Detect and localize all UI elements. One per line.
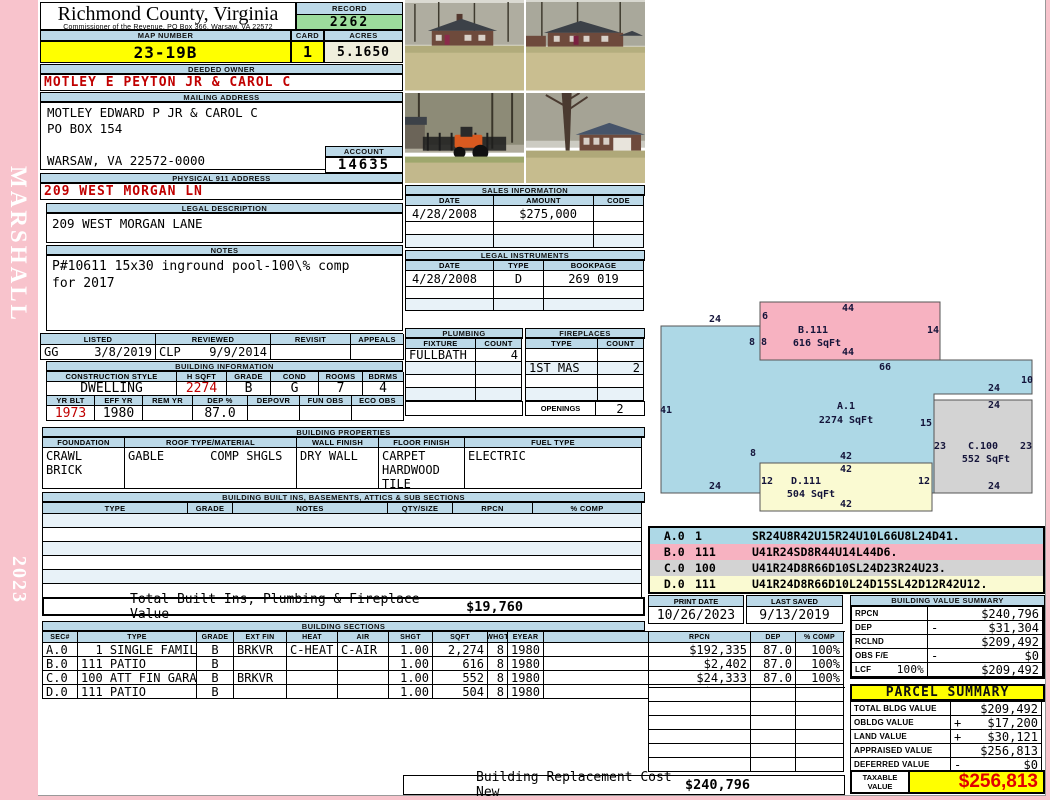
instrument-date: [406, 299, 494, 311]
building-info-header: H SQFT: [177, 372, 227, 382]
value-summary-amount: $240,796: [928, 607, 1043, 621]
building-info-header: ECO OBS: [352, 396, 404, 406]
instrument-date: [406, 287, 494, 299]
sale-amount: $275,000: [494, 206, 594, 222]
sketch-codes-table: A.01SR24U8R42U15R24U10L66U8L24D41. B.011…: [648, 526, 1045, 594]
sections-col-header: HEAT: [287, 632, 338, 643]
sketch-dimension-label: 23: [934, 441, 946, 452]
review-col-header: LISTED: [41, 334, 156, 345]
building-value-summary-table: RPCN$240,796DEP-$31,304RCLND$209,492OBS …: [850, 606, 1045, 679]
sections-empty-cell: [796, 716, 844, 730]
section-sqft: 2,274: [433, 643, 488, 657]
sale-code: [594, 235, 644, 248]
section-sec: C.0: [43, 671, 78, 685]
fireplace-type: [526, 375, 598, 388]
sketch-dimension-label: 10: [1021, 375, 1033, 386]
sale-code: [594, 222, 644, 235]
sketch-dimension-label: C.100: [968, 441, 998, 452]
sketch-dimension-label: 42: [840, 451, 852, 462]
sales-col-header: DATE: [406, 196, 494, 206]
economic-obsolescence: [352, 406, 404, 421]
account-label: ACCOUNT: [325, 146, 403, 157]
parcel-amount: $256,813: [951, 744, 1042, 758]
sections-empty-cell: [649, 744, 751, 758]
photo-side-illustration: [526, 0, 645, 91]
sections-empty-cell: [796, 688, 844, 702]
section-ext-fin: [234, 685, 287, 699]
replacement-cost-label: Building Replacement Cost New: [476, 770, 685, 800]
sketch-code-code: 1: [695, 529, 752, 543]
built-ins-header: GRADE: [188, 503, 233, 514]
section-shgt: 1.00: [389, 685, 433, 699]
sketch-code-row: B.0111U41R24SD8R44U14L44D6.: [650, 544, 1043, 560]
notes-text: P#10611 15x30 inground pool-100\% comp f…: [46, 255, 403, 331]
depreciation-pct: 87.0: [193, 406, 248, 421]
sections-empty-cell: [751, 702, 796, 716]
plumbing-count: [476, 375, 522, 388]
section-heat: C-HEAT: [287, 643, 338, 657]
built-ins-header: % COMP: [533, 503, 642, 514]
sections-col-header: SQFT: [433, 632, 488, 643]
value-summary-label: OBS F/E: [852, 649, 928, 663]
last-saved-label: LAST SAVED: [746, 595, 843, 607]
sale-date: 4/28/2008: [406, 206, 494, 222]
sketch-dimension-label: 24: [988, 400, 1000, 411]
value-summary-amount: $209,492: [928, 635, 1043, 649]
sale-code: [594, 206, 644, 222]
instrument-bookpage: 269 019: [544, 271, 644, 287]
replacement-cost-row: Building Replacement Cost New $240,796: [403, 775, 845, 795]
sketch-dimension-label: B.111: [798, 325, 828, 336]
map-number-label: MAP NUMBER: [40, 30, 291, 41]
section-whgt: 8: [488, 671, 508, 685]
section-tail: [544, 657, 649, 671]
section-dep: 87.0: [751, 643, 796, 657]
foundation: CRAWL BRICK: [43, 448, 125, 489]
building-info-header: ROOMS: [319, 372, 363, 382]
sketch-dimension-label: 24: [709, 481, 721, 492]
section-air: [338, 657, 389, 671]
section-shgt: 1.00: [389, 671, 433, 685]
heated-sqft: 2274: [177, 382, 227, 396]
parcel-amount: +$17,200: [951, 716, 1042, 730]
plumbing-fixture: [406, 375, 476, 388]
sections-empty-cell: [649, 730, 751, 744]
property-photo-tractor: [405, 93, 524, 184]
instrument-col-header: BOOKPAGE: [544, 261, 644, 271]
section-rpcn: $2,402: [649, 657, 751, 671]
sketch-code-sec: C.0: [650, 561, 695, 575]
building-info-header: YR BLT: [47, 396, 95, 406]
plumbing-label: PLUMBING: [405, 328, 523, 338]
property-header: FLOOR FINISH: [379, 438, 465, 448]
sale-amount: [494, 222, 594, 235]
built-ins-empty-row: [43, 570, 642, 584]
value-summary-label: LCF100%: [852, 663, 928, 677]
instrument-date: 4/28/2008: [406, 271, 494, 287]
notes-label: NOTES: [46, 245, 403, 255]
card-number: 1: [291, 41, 324, 63]
sketch-code-code: 100: [695, 561, 752, 575]
sale-date: [406, 235, 494, 248]
listed-value: GG3/8/2019: [41, 345, 156, 360]
section-type: 100 ATT FIN GARAGE: [78, 671, 197, 685]
photo-front-illustration: [405, 0, 524, 91]
sketch-code-vector: U41R24D8R66D10L24D15SL42D12R42U12.: [752, 577, 1045, 591]
building-sketch: 24412466102415428A.12274 SqFt44688B.1116…: [650, 290, 1045, 522]
fireplace-type: 1ST MAS: [526, 362, 598, 375]
section-comp: 100%: [796, 643, 844, 657]
parcel-label: APPRAISED VALUE: [851, 744, 951, 758]
plumbing-empty-cell: [405, 401, 523, 416]
built-ins-header: RPCN: [453, 503, 533, 514]
sales-table: DATEAMOUNTCODE4/28/2008$275,000: [405, 195, 645, 248]
sketch-dimension-label: 552 SqFt: [962, 454, 1010, 465]
section-air: [338, 671, 389, 685]
sections-empty-cell: [796, 744, 844, 758]
sketch-dimension-label: 15: [920, 418, 932, 429]
taxable-value-label: TAXABLE VALUE: [852, 772, 910, 792]
built-ins-header: TYPE: [43, 503, 188, 514]
building-info-header: DEP %: [193, 396, 248, 406]
section-eyear: 1980: [508, 685, 544, 699]
fireplace-count: [598, 349, 644, 362]
openings-label: OPENINGS: [525, 401, 596, 416]
plumbing-fixture: FULLBATH: [406, 349, 476, 362]
instrument-col-header: DATE: [406, 261, 494, 271]
instrument-col-header: TYPE: [494, 261, 544, 271]
plumbing-fixture: [406, 388, 476, 401]
building-info-header: EFF YR: [95, 396, 143, 406]
physical-address: 209 WEST MORGAN LN: [40, 183, 403, 200]
building-info-header: COND: [271, 372, 319, 382]
instrument-bookpage: [544, 299, 644, 311]
parcel-label: TOTAL BLDG VALUE: [851, 702, 951, 716]
sketch-code-row: A.01SR24U8R42U15R24U10L66U8L24D41.: [650, 528, 1043, 544]
building-info-header: FUN OBS: [300, 396, 352, 406]
section-comp: 100%: [796, 671, 844, 685]
fuel-type: ELECTRIC: [465, 448, 642, 489]
plumbing-col-header: COUNT: [476, 339, 522, 349]
sketch-code-row: D.0111U41R24D8R66D10L24D15SL42D12R42U12.: [650, 576, 1043, 592]
property-record-card: Richmond County, Virginia Commissioner o…: [38, 0, 1046, 796]
parcel-summary-title: PARCEL SUMMARY: [850, 684, 1045, 701]
fireplaces-label: FIREPLACES: [525, 328, 645, 338]
building-properties-table: FOUNDATIONROOF TYPE/MATERIALWALL FINISHF…: [42, 437, 645, 489]
section-sqft: 616: [433, 657, 488, 671]
property-header: ROOF TYPE/MATERIAL: [125, 438, 297, 448]
acres-value: 5.1650: [324, 41, 403, 63]
print-date-box: PRINT DATE 10/26/2023: [648, 595, 744, 624]
sections-col-header: SEC#: [43, 632, 78, 643]
building-info-header: REM YR: [143, 396, 193, 406]
building-info-header: DEPOVR: [248, 396, 300, 406]
deeded-owner-name: MOTLEY E PEYTON JR & CAROL C: [40, 74, 403, 91]
property-photo-side: [526, 0, 645, 91]
year-watermark: 2023: [7, 556, 30, 604]
sketch-dimension-label: 504 SqFt: [787, 489, 835, 500]
value-summary-label: DEP: [852, 621, 928, 635]
built-ins-header: NOTES: [233, 503, 388, 514]
sketch-code-vector: U41R24SD8R44U14L44D6.: [752, 545, 1045, 559]
section-tail: [544, 643, 649, 657]
openings-count: 2: [595, 401, 645, 416]
record-number: 2262: [296, 14, 403, 30]
section-sec: B.0: [43, 657, 78, 671]
building-information-label: BUILDING INFORMATION: [46, 361, 403, 371]
built-ins-empty-row: [43, 514, 642, 528]
sketch-code-sec: D.0: [650, 577, 695, 591]
sections-empty-cell: [796, 758, 844, 772]
section-eyear: 1980: [508, 671, 544, 685]
sections-empty-cell: [649, 716, 751, 730]
building-sections-empty-rows: [648, 687, 845, 772]
sections-col-header: SHGT: [389, 632, 433, 643]
sketch-code-vector: U41R24D8R66D10SL24D23R24U23.: [752, 561, 1045, 575]
built-ins-empty-row: [43, 556, 642, 570]
sections-col-header: [544, 632, 649, 643]
built-ins-total-label: Total Built Ins, Plumbing & Fireplace Va…: [130, 592, 466, 622]
last-saved-value: 9/13/2019: [746, 607, 843, 624]
photo-grid: [405, 0, 645, 183]
sketch-dimension-label: 44: [842, 303, 854, 314]
sales-col-header: CODE: [594, 196, 644, 206]
sale-date: [406, 222, 494, 235]
instrument-bookpage: [544, 287, 644, 299]
building-info-header: GRADE: [227, 372, 271, 382]
section-heat: [287, 671, 338, 685]
fireplace-type: [526, 349, 598, 362]
instrument-type: D: [494, 271, 544, 287]
legal-instruments-table: DATETYPEBOOKPAGE4/28/2008D269 019: [405, 260, 645, 311]
parcel-amount: $209,492: [951, 702, 1042, 716]
built-ins-label: BUILDING BUILT INS, BASEMENTS, ATTICS & …: [42, 492, 645, 502]
review-col-header: REVISIT: [271, 334, 351, 345]
built-ins-table: TYPEGRADENOTESQTY/SIZERPCN% COMP: [42, 502, 645, 598]
sketch-dimension-label: 6: [762, 311, 768, 322]
sketch-code-code: 111: [695, 545, 752, 559]
sections-empty-cell: [751, 758, 796, 772]
property-header: WALL FINISH: [297, 438, 379, 448]
legal-instruments-label: LEGAL INSTRUMENTS: [405, 250, 645, 260]
effective-year: 1980: [95, 406, 143, 421]
sales-col-header: AMOUNT: [494, 196, 594, 206]
print-date-value: 10/26/2023: [648, 607, 744, 624]
property-photo-garage: [526, 93, 645, 184]
plumbing-count: 4: [476, 349, 522, 362]
construction-style: DWELLING: [47, 382, 177, 396]
sketch-dimension-label: 8: [749, 337, 755, 348]
section-eyear: 1980: [508, 657, 544, 671]
section-air: C-AIR: [338, 643, 389, 657]
sketch-code-sec: A.0: [650, 529, 695, 543]
fireplace-count: [598, 388, 644, 401]
fireplace-count: [598, 375, 644, 388]
last-saved-box: LAST SAVED 9/13/2019: [746, 595, 843, 624]
sketch-dimension-label: 24: [988, 383, 1000, 394]
sections-col-header: EXT FIN: [234, 632, 287, 643]
deeded-owner-label: DEEDED OWNER: [40, 64, 403, 74]
sections-empty-cell: [751, 716, 796, 730]
sketch-dimension-label: 2274 SqFt: [819, 415, 873, 426]
section-ext-fin: BRKVR: [234, 671, 287, 685]
acres-label: ACRES: [324, 30, 403, 41]
section-tail: [544, 685, 649, 699]
taxable-value: $256,813: [910, 772, 1043, 792]
sketch-code-sec: B.0: [650, 545, 695, 559]
county-title: Richmond County, Virginia: [41, 4, 295, 24]
appeals-value: [351, 345, 404, 360]
sections-col-header: GRADE: [197, 632, 234, 643]
section-heat: [287, 685, 338, 699]
sketch-dimension-label: D.111: [791, 476, 821, 487]
wall-finish: DRY WALL: [297, 448, 379, 489]
building-info-row1: CONSTRUCTION STYLEH SQFTGRADECONDROOMSBD…: [46, 371, 403, 396]
roof-type-material: GABLECOMP SHGLS: [125, 448, 297, 489]
section-whgt: 8: [488, 685, 508, 699]
building-value-summary-label: BUILDING VALUE SUMMARY: [850, 595, 1045, 606]
photo-tractor-illustration: [405, 93, 524, 184]
section-type: 111 PATIO: [78, 657, 197, 671]
section-shgt: 1.00: [389, 657, 433, 671]
review-col-header: REVIEWED: [156, 334, 271, 345]
parcel-summary-table: TOTAL BLDG VALUE$209,492OBLDG VALUE+$17,…: [850, 701, 1045, 772]
section-type: 111 PATIO: [78, 685, 197, 699]
property-header: FUEL TYPE: [465, 438, 642, 448]
sections-col-header: % COMP: [796, 632, 844, 643]
sections-col-header: EYEAR: [508, 632, 544, 643]
section-air: [338, 685, 389, 699]
review-table: LISTEDREVIEWEDREVISITAPPEALSGG3/8/2019CL…: [40, 333, 403, 360]
remodel-year: [143, 406, 193, 421]
sketch-dimension-label: 24: [988, 481, 1000, 492]
sale-amount: [494, 235, 594, 248]
section-dep: 87.0: [751, 671, 796, 685]
building-sections-label: BUILDING SECTIONS: [42, 621, 645, 631]
sketch-code-code: 111: [695, 577, 752, 591]
section-ext-fin: [234, 657, 287, 671]
sections-empty-cell: [796, 730, 844, 744]
section-rpcn: $192,335: [649, 643, 751, 657]
sketch-dimension-label: 12: [918, 476, 930, 487]
sections-col-header: DEP: [751, 632, 796, 643]
section-sqft: 504: [433, 685, 488, 699]
legal-description-label: LEGAL DESCRIPTION: [46, 203, 403, 213]
sections-empty-cell: [649, 702, 751, 716]
section-grade: B: [197, 657, 234, 671]
sketch-dimension-label: 14: [927, 325, 939, 336]
section-type: 1 SINGLE FAMILY: [78, 643, 197, 657]
sections-col-header: RPCN: [649, 632, 751, 643]
dep-override: [248, 406, 300, 421]
replacement-cost-value: $240,796: [685, 777, 750, 793]
fireplace-type: [526, 388, 598, 401]
section-shgt: 1.00: [389, 643, 433, 657]
parcel-label: OBLDG VALUE: [851, 716, 951, 730]
sketch-dimension-label: 12: [761, 476, 773, 487]
plumbing-count: [476, 388, 522, 401]
section-grade: B: [197, 685, 234, 699]
sections-empty-cell: [796, 702, 844, 716]
sketch-code-vector: SR24U8R42U15R24U10L66U8L24D41.: [752, 529, 1045, 543]
floor-finish: CARPET HARDWOOD TILE: [379, 448, 465, 489]
property-header: FOUNDATION: [43, 438, 125, 448]
sketch-dimension-label: 66: [879, 362, 891, 373]
section-ext-fin: BRKVR: [234, 643, 287, 657]
reviewed-value: CLP9/9/2014: [156, 345, 271, 360]
sketch-dimension-label: 42: [840, 464, 852, 475]
year-built: 1973: [47, 406, 95, 421]
bedrooms: 4: [363, 382, 404, 396]
sketch-code-row: C.0100U41R24D8R66D10SL24D23R24U23.: [650, 560, 1043, 576]
value-summary-amount: $209,492: [928, 663, 1043, 677]
section-sqft: 552: [433, 671, 488, 685]
value-summary-label: RCLND: [852, 635, 928, 649]
grade: B: [227, 382, 271, 396]
parcel-label: LAND VALUE: [851, 730, 951, 744]
section-sec: D.0: [43, 685, 78, 699]
sketch-dimension-label: 42: [840, 499, 852, 510]
parcel-amount: +$30,121: [951, 730, 1042, 744]
building-info-header: CONSTRUCTION STYLE: [47, 372, 177, 382]
sections-col-header: WHGT: [488, 632, 508, 643]
rooms: 7: [319, 382, 363, 396]
review-col-header: APPEALS: [351, 334, 404, 345]
section-whgt: 8: [488, 657, 508, 671]
section-eyear: 1980: [508, 643, 544, 657]
built-ins-empty-row: [43, 528, 642, 542]
sections-empty-cell: [649, 688, 751, 702]
county-header: Richmond County, Virginia Commissioner o…: [40, 2, 296, 30]
built-ins-total-value: $19,760: [466, 599, 523, 615]
sections-col-header: TYPE: [78, 632, 197, 643]
section-heat: [287, 657, 338, 671]
instrument-type: [494, 287, 544, 299]
print-date-label: PRINT DATE: [648, 595, 744, 607]
functional-obsolescence: [300, 406, 352, 421]
section-dep: 87.0: [751, 657, 796, 671]
sketch-dimension-label: 24: [709, 314, 721, 325]
section-tail: [544, 671, 649, 685]
sketch-dimension-label: 616 SqFt: [793, 338, 841, 349]
value-summary-amount: -$31,304: [928, 621, 1043, 635]
map-number: 23-19B: [40, 41, 291, 63]
section-grade: B: [197, 643, 234, 657]
sketch-dimension-label: 8: [750, 448, 756, 459]
built-ins-total-row: Total Built Ins, Plumbing & Fireplace Va…: [42, 597, 645, 616]
section-grade: B: [197, 671, 234, 685]
vendor-watermark: MARSHALL: [5, 166, 31, 323]
mailing-address-label: MAILING ADDRESS: [40, 92, 403, 102]
sections-empty-cell: [751, 744, 796, 758]
fireplace-count: 2: [598, 362, 644, 375]
instrument-type: [494, 299, 544, 311]
plumbing-count: [476, 362, 522, 375]
sketch-dimension-label: 8: [761, 337, 767, 348]
fireplace-col-header: TYPE: [526, 339, 598, 349]
building-info-header: BDRMS: [363, 372, 404, 382]
building-properties-label: BUILDING PROPERTIES: [42, 427, 645, 437]
built-ins-header: QTY/SIZE: [388, 503, 453, 514]
plumbing-fixture: [406, 362, 476, 375]
physical-address-label: PHYSICAL 911 ADDRESS: [40, 173, 403, 183]
plumbing-table: FIXTURECOUNTFULLBATH4: [405, 338, 523, 401]
fireplaces-table: TYPECOUNT1ST MAS2: [525, 338, 645, 401]
section-comp: 100%: [796, 657, 844, 671]
sections-empty-cell: [751, 730, 796, 744]
sections-empty-cell: [751, 688, 796, 702]
plumbing-col-header: FIXTURE: [406, 339, 476, 349]
